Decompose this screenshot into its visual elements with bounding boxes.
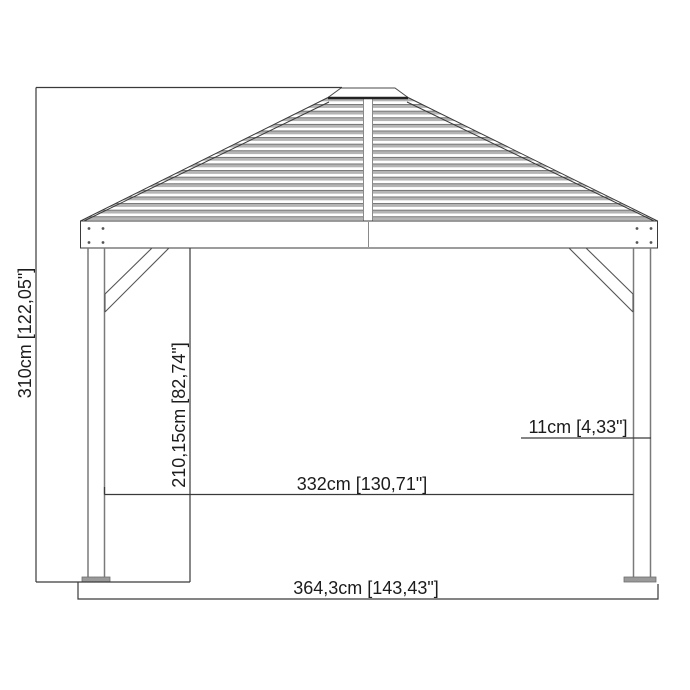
gazebo-dimension-drawing: 310cm [122,05"] 210,15cm [82,74"] 332cm … [0,0,690,690]
header-beam [81,221,658,248]
left-post-foot [82,577,110,582]
right-knee-brace-upper-edge [586,248,633,294]
post-width-label: 11cm [4,33"] [528,417,627,437]
left-knee-brace-upper-edge [105,248,152,294]
inner-span-label: 332cm [130,71"] [297,474,427,494]
screw-dot [636,227,639,230]
screw-dot [88,241,91,244]
dimension-labels: 310cm [122,05"] 210,15cm [82,74"] 332cm … [15,268,628,598]
gazebo-side-elevation-svg: 310cm [122,05"] 210,15cm [82,74"] 332cm … [0,0,690,690]
post-height-label: 210,15cm [82,74"] [169,342,189,488]
screw-dot [650,241,653,244]
left-knee-brace-lower-edge [105,248,169,312]
right-knee-brace-lower-edge [569,248,633,312]
left-post [82,248,110,582]
roof [70,88,670,225]
ridge-cap [328,88,408,98]
screw-dot [636,241,639,244]
right-post [624,248,656,582]
screw-dot [650,227,653,230]
screw-dot [102,241,105,244]
right-knee-brace [569,248,633,312]
ridge-gap [364,99,373,222]
screw-dot [88,227,91,230]
overall-width-label: 364,3cm [143,43"] [293,578,439,598]
right-post-foot [624,577,656,582]
left-knee-brace [105,248,169,312]
screw-dot [102,227,105,230]
total-height-label: 310cm [122,05"] [15,268,35,398]
